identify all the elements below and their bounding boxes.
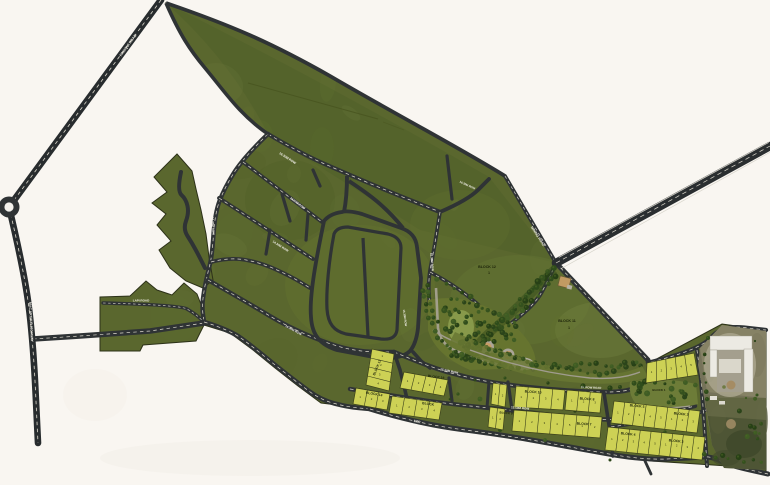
svg-text:1: 1	[568, 326, 570, 330]
svg-text:BLOCK 1: BLOCK 1	[652, 388, 665, 392]
svg-text:15. ROW ROAD: 15. ROW ROAD	[581, 385, 602, 390]
svg-text:LAPI ROAD: LAPI ROAD	[133, 299, 150, 303]
svg-text:BLOCK 12: BLOCK 12	[478, 265, 496, 269]
svg-text:1: 1	[488, 271, 490, 275]
svg-text:BLOCK 11: BLOCK 11	[558, 319, 576, 323]
